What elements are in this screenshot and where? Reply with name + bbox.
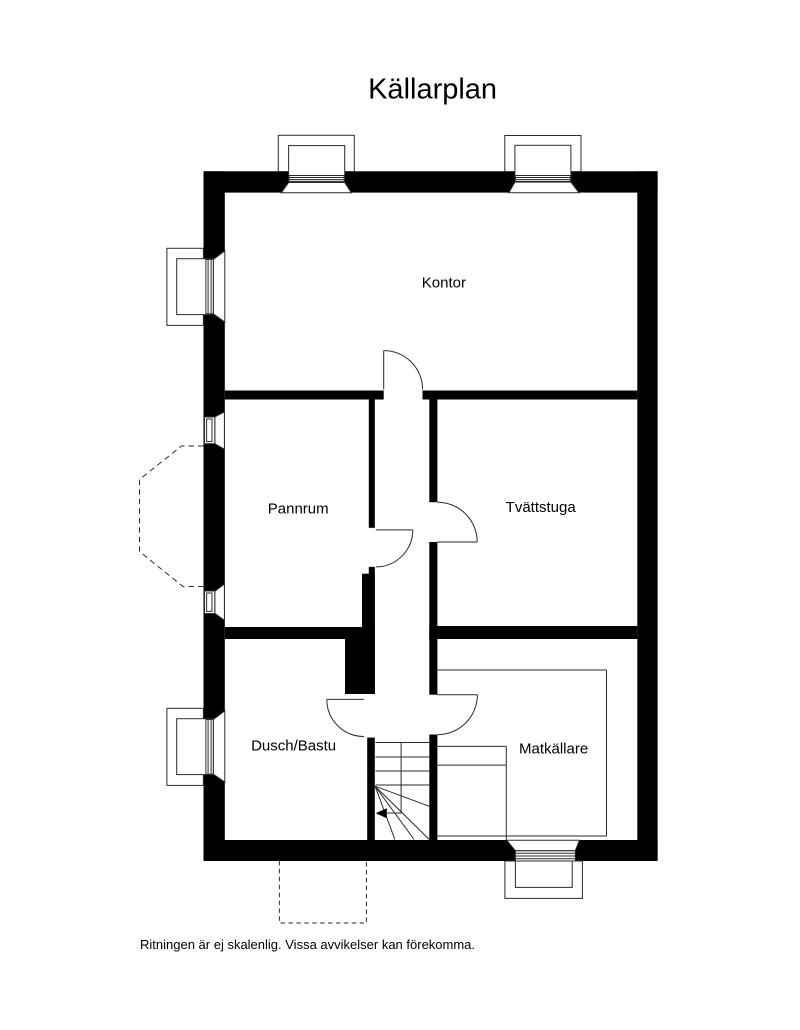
svg-text:Pannrum: Pannrum <box>268 500 329 517</box>
svg-text:Tvättstuga: Tvättstuga <box>506 499 577 516</box>
svg-text:Matkällare: Matkällare <box>519 741 588 758</box>
svg-text:Ritningen är ej skalenlig. Vis: Ritningen är ej skalenlig. Vissa avvikel… <box>140 937 475 952</box>
svg-text:Kontor: Kontor <box>422 275 466 292</box>
svg-text:Källarplan: Källarplan <box>368 73 497 105</box>
svg-text:Dusch/Bastu: Dusch/Bastu <box>251 737 336 754</box>
